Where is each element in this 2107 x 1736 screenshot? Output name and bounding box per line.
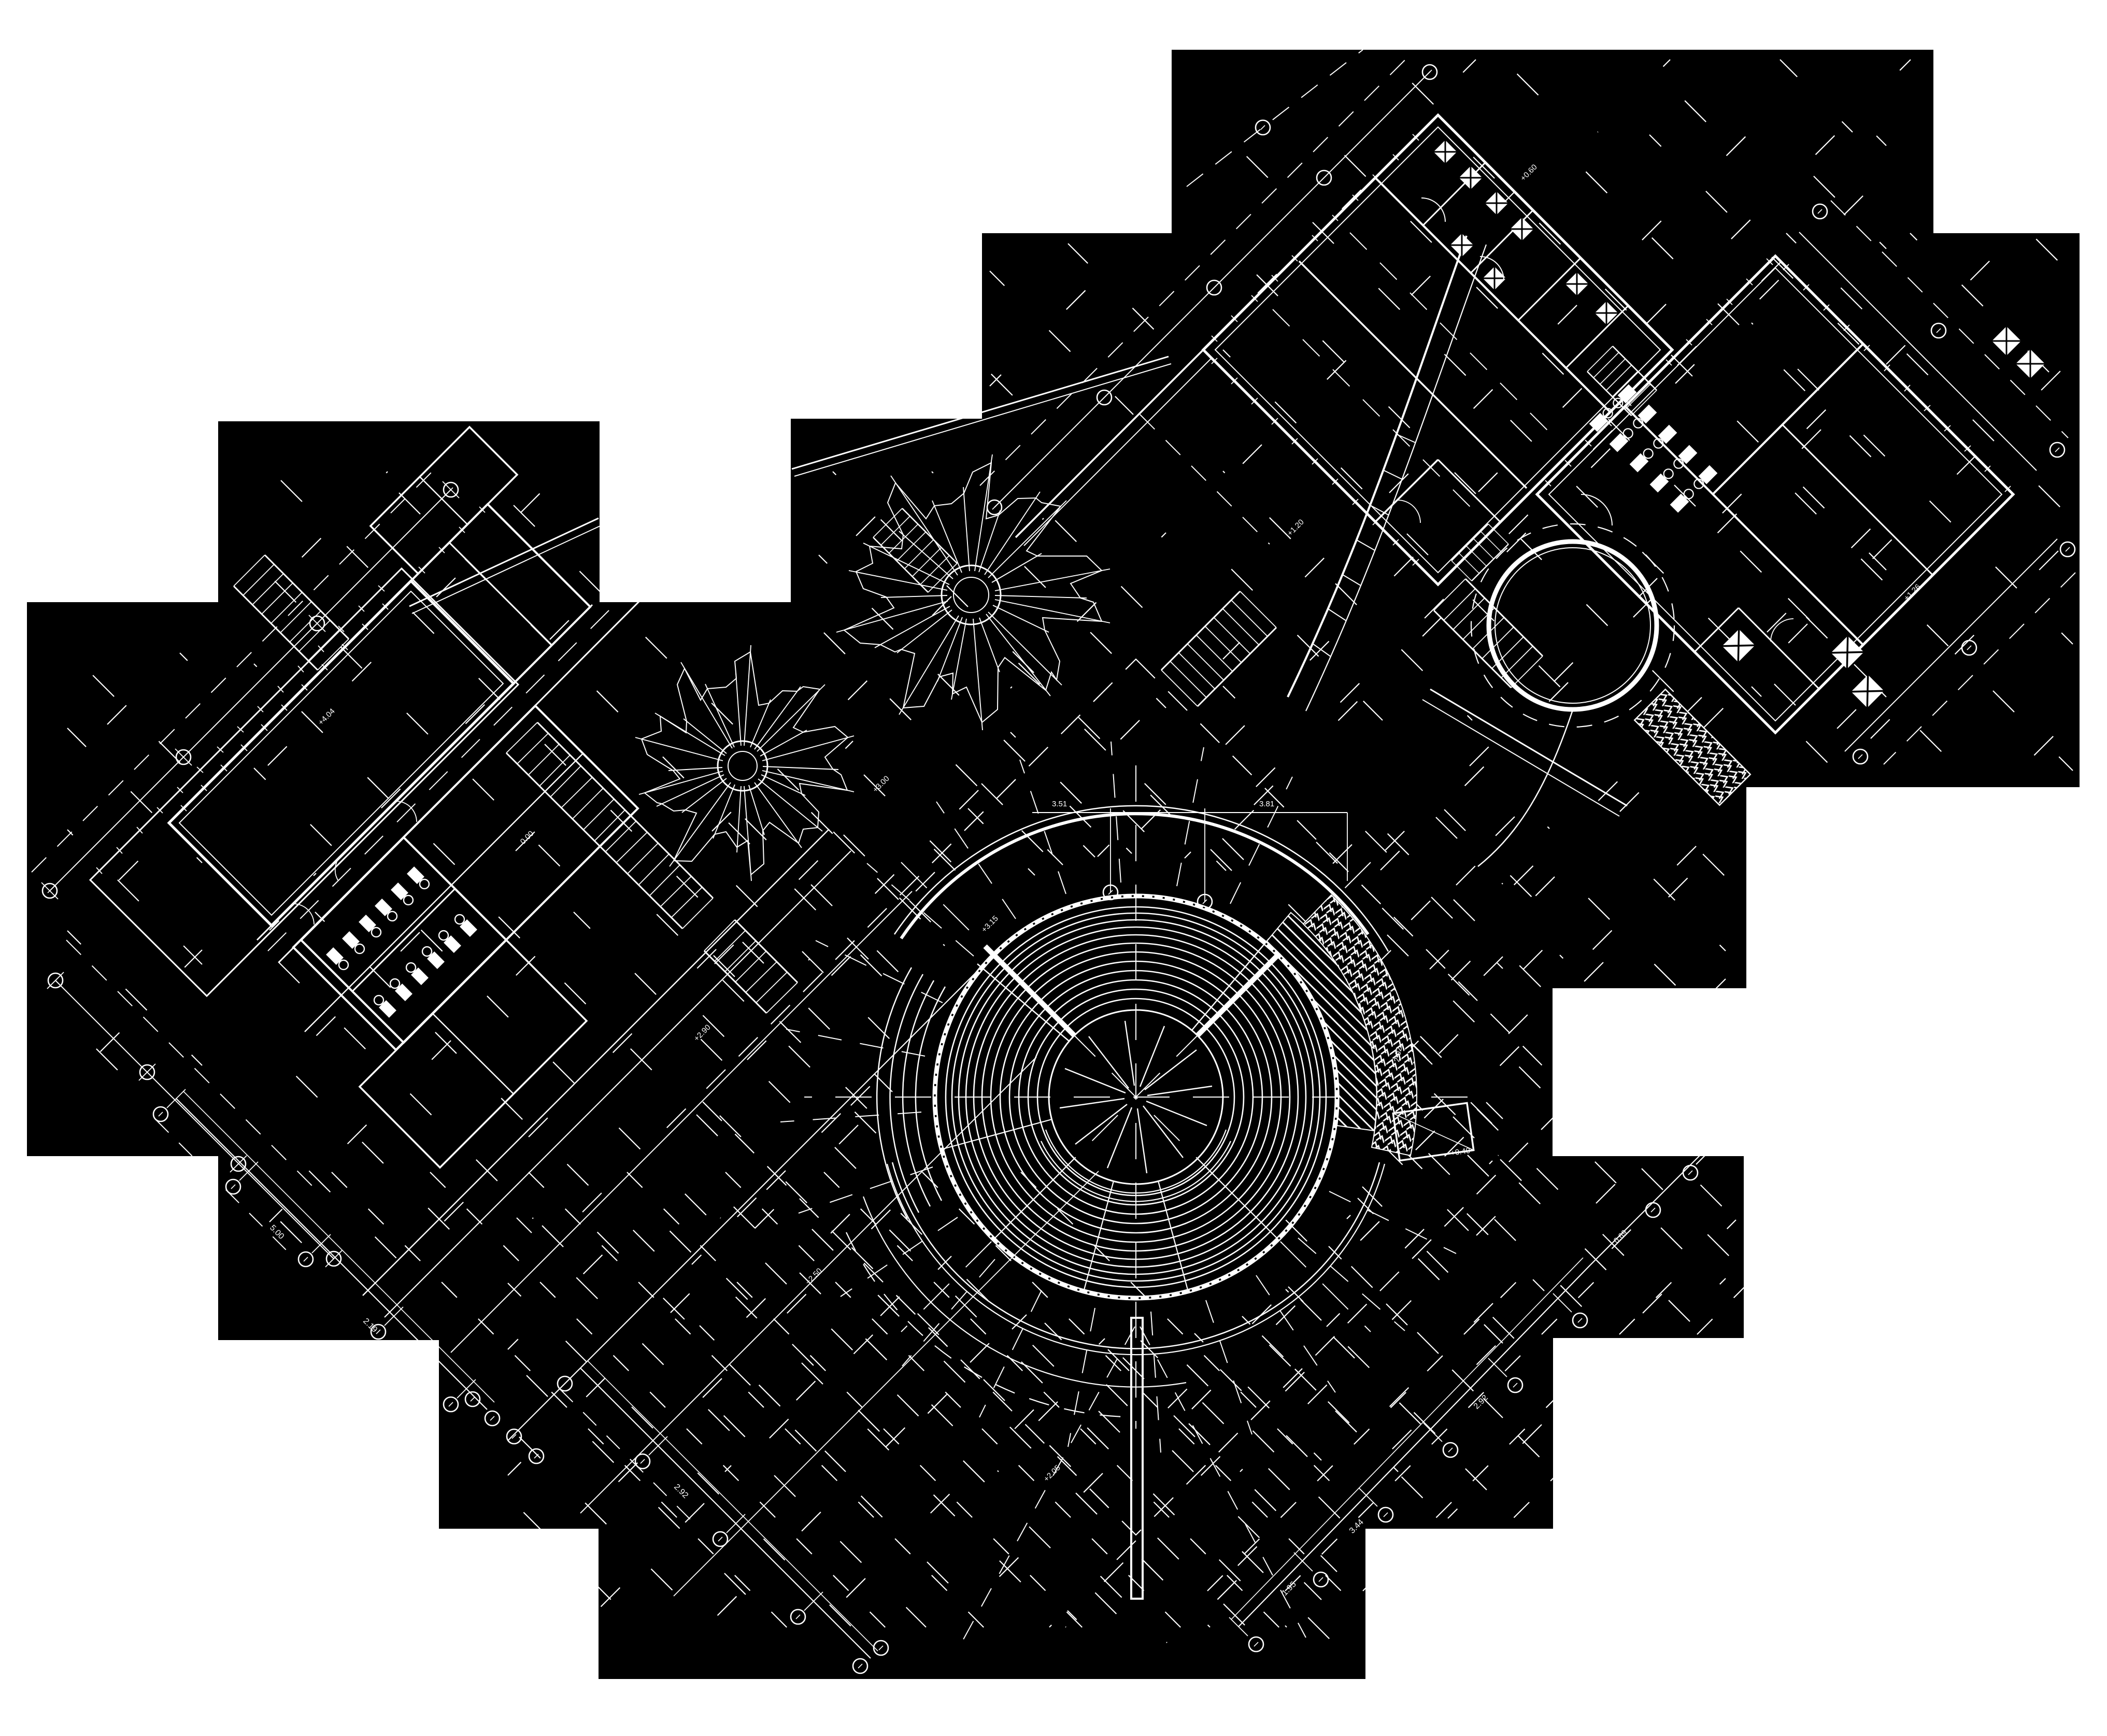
svg-text:3.81: 3.81 <box>1259 800 1274 808</box>
svg-text:3.51: 3.51 <box>1052 800 1067 808</box>
